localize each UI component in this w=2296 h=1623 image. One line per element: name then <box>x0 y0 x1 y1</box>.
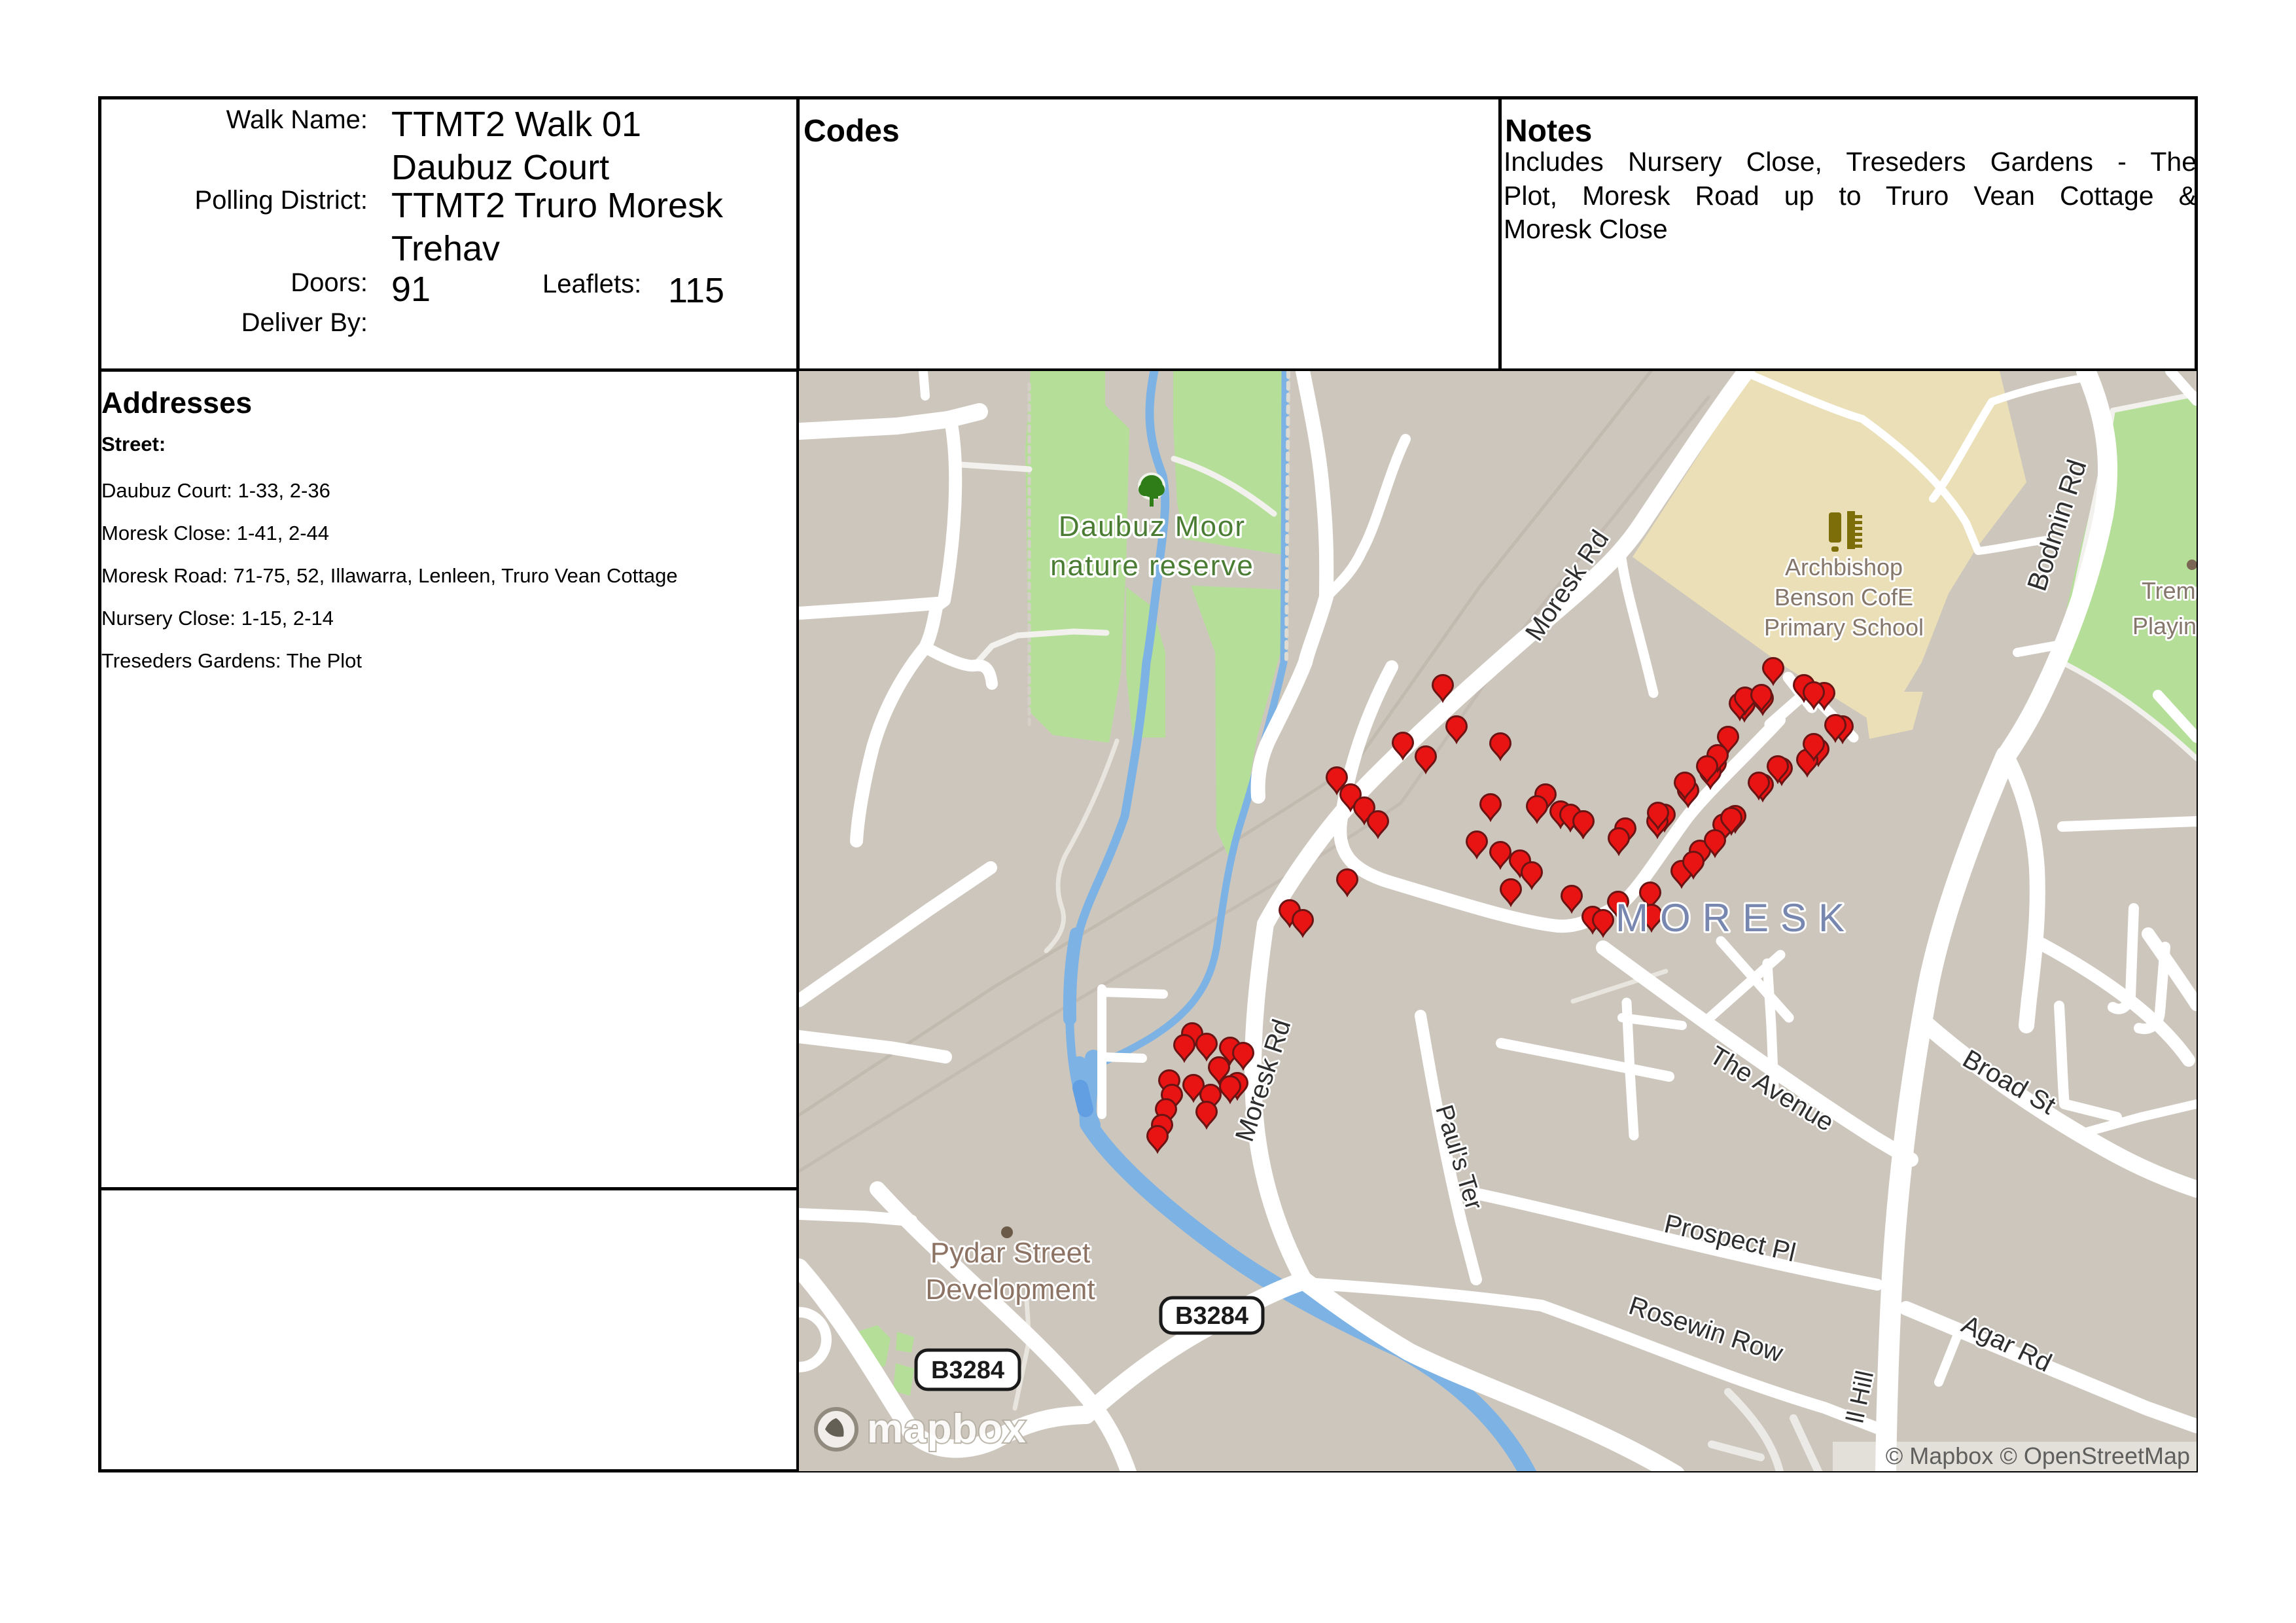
svg-text:MORESK: MORESK <box>1616 896 1856 940</box>
svg-text:Daubuz Moor: Daubuz Moor <box>1059 510 1246 543</box>
svg-text:Pydar Street: Pydar Street <box>930 1237 1091 1269</box>
svg-text:mapbox: mapbox <box>867 1406 1027 1452</box>
svg-text:Development: Development <box>925 1274 1095 1306</box>
svg-text:Playing Field: Playing Field <box>2132 613 2197 639</box>
svg-text:B3284: B3284 <box>1175 1302 1248 1330</box>
svg-text:Tremorvah: Tremorvah <box>2142 577 2197 604</box>
svg-text:Archbishop: Archbishop <box>1785 554 1903 580</box>
svg-text:nature reserve: nature reserve <box>1050 550 1254 582</box>
svg-text:Primary School: Primary School <box>1764 614 1924 641</box>
svg-text:Benson CofE: Benson CofE <box>1775 584 1913 611</box>
svg-text:B3284: B3284 <box>931 1357 1004 1384</box>
svg-text:© Mapbox © OpenStreetMap: © Mapbox © OpenStreetMap <box>1886 1442 2190 1469</box>
